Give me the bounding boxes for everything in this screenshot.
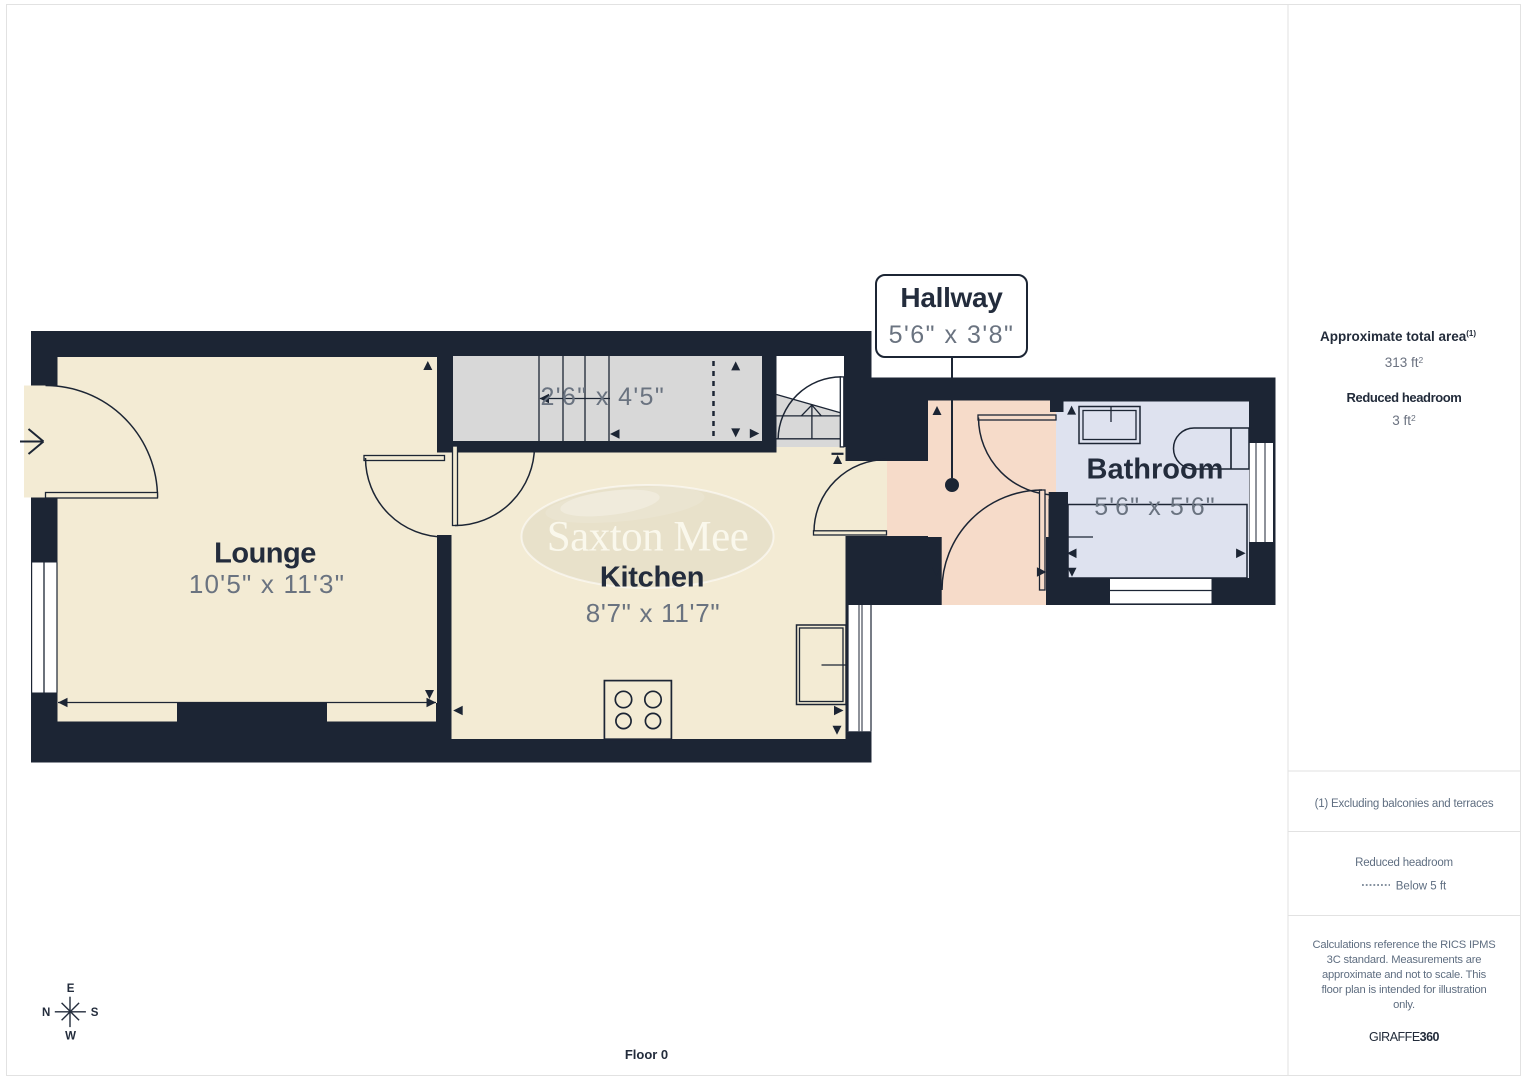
svg-text:5'6" x 5'6": 5'6" x 5'6" bbox=[1094, 493, 1215, 521]
svg-text:N: N bbox=[42, 1007, 50, 1019]
svg-text:W: W bbox=[65, 1031, 76, 1043]
svg-text:313 ft2: 313 ft2 bbox=[1385, 355, 1424, 370]
svg-text:Hallway: Hallway bbox=[900, 282, 1003, 313]
svg-text:Reduced headroom: Reduced headroom bbox=[1347, 390, 1462, 405]
svg-text:E: E bbox=[67, 983, 75, 995]
svg-text:only.: only. bbox=[1393, 999, 1415, 1011]
svg-text:10'5" x 11'3": 10'5" x 11'3" bbox=[189, 569, 345, 599]
svg-text:Saxton Mee: Saxton Mee bbox=[547, 514, 749, 561]
svg-text:Below 5 ft: Below 5 ft bbox=[1396, 881, 1447, 893]
svg-text:GIRAFFE360: GIRAFFE360 bbox=[1369, 1030, 1440, 1044]
svg-text:5'6" x 3'8": 5'6" x 3'8" bbox=[889, 321, 1015, 349]
svg-text:Approximate total area(1): Approximate total area(1) bbox=[1320, 329, 1476, 344]
svg-text:Bathroom: Bathroom bbox=[1087, 454, 1224, 486]
svg-text:Reduced headroom: Reduced headroom bbox=[1355, 857, 1453, 869]
svg-text:Lounge: Lounge bbox=[214, 538, 316, 570]
svg-text:Kitchen: Kitchen bbox=[600, 562, 704, 594]
svg-text:approximate and not to scale.: approximate and not to scale. This bbox=[1322, 969, 1487, 981]
svg-text:2'6" x 4'5": 2'6" x 4'5" bbox=[540, 383, 665, 411]
svg-text:3C standard. Measurements are: 3C standard. Measurements are bbox=[1327, 954, 1482, 966]
svg-text:Calculations reference the RIC: Calculations reference the RICS IPMS bbox=[1312, 939, 1495, 951]
svg-text:floor plan is intended for ill: floor plan is intended for illustration bbox=[1321, 984, 1486, 996]
svg-text:Floor 0: Floor 0 bbox=[625, 1047, 668, 1062]
svg-text:8'7" x 11'7": 8'7" x 11'7" bbox=[586, 598, 721, 628]
svg-text:(1) Excluding balconies and te: (1) Excluding balconies and terraces bbox=[1315, 798, 1494, 810]
svg-text:S: S bbox=[91, 1007, 99, 1019]
